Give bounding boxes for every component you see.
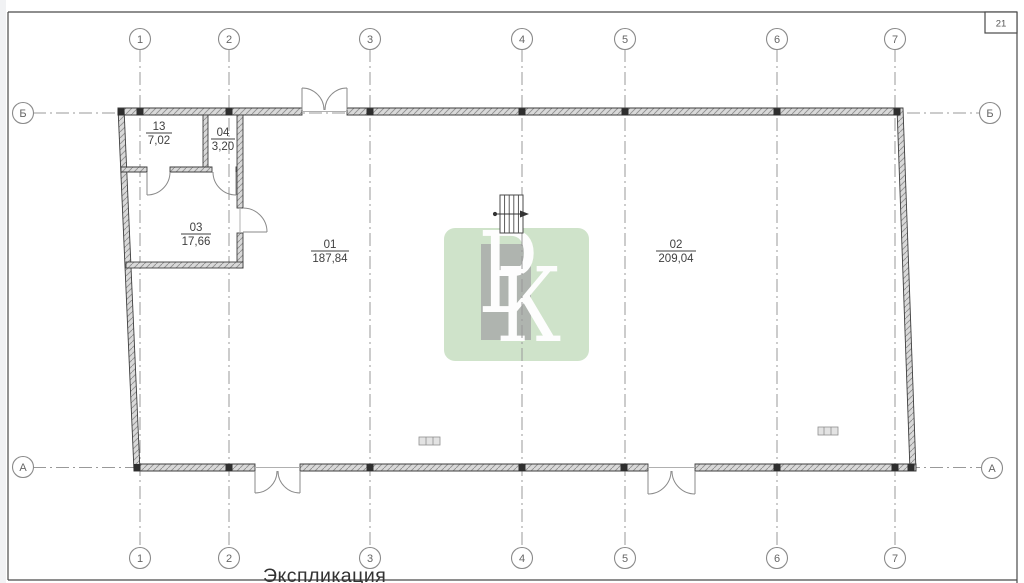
svg-text:01: 01 — [324, 239, 337, 251]
grid-bubble-col-3: 3 — [360, 29, 381, 50]
wall-room13-bottom — [121, 167, 147, 172]
walls — [118, 108, 916, 471]
room-label-04: 04 3,20 — [211, 127, 235, 153]
grid-bubbles-bottom: 1 2 3 4 5 6 7 — [130, 548, 906, 569]
room-label-13: 13 7,02 — [146, 121, 172, 147]
floor-plan-drawing: 21 — [0, 0, 1024, 583]
grid-bubble-col-7: 7 — [885, 29, 906, 50]
sheet-title: Экспликация — [263, 565, 386, 583]
door-room03 — [243, 208, 267, 232]
room-label-02: 02 209,04 — [656, 239, 696, 265]
svg-text:7: 7 — [892, 34, 898, 46]
double-door-bottom-left — [255, 471, 300, 493]
equipment-box — [818, 427, 838, 435]
grid-bubble-col-4: 4 — [512, 29, 533, 50]
grid-bubble-col-2: 2 — [219, 29, 240, 50]
svg-text:Б: Б — [19, 108, 26, 120]
svg-text:5: 5 — [622, 553, 628, 565]
double-door-top — [302, 88, 347, 110]
grid-bubble-col-6: 6 — [767, 29, 788, 50]
svg-text:5: 5 — [622, 34, 628, 46]
floor-plan-canvas: Р К 21 — [0, 0, 1024, 583]
grid-bubble-col-2: 2 — [219, 548, 240, 569]
wall-bottom-2 — [300, 464, 648, 471]
wall-left — [118, 108, 140, 471]
drawing-frame — [8, 12, 1017, 583]
wall-bottom-3 — [695, 464, 916, 471]
grid-bubble-row-b-right: Б — [980, 103, 1001, 124]
wall-room04-bottom — [170, 167, 212, 172]
wall-room03-right-upper — [237, 115, 243, 208]
svg-text:3: 3 — [367, 34, 373, 46]
equipment-boxes — [419, 427, 838, 445]
door-room04 — [213, 172, 236, 195]
svg-text:3: 3 — [367, 553, 373, 565]
grid-bubble-col-1: 1 — [130, 548, 151, 569]
grid-bubbles-top: 1 2 3 4 5 6 7 — [130, 29, 906, 50]
svg-text:6: 6 — [774, 34, 780, 46]
sheet-number-box: 21 — [985, 12, 1017, 33]
grid-bubble-col-7: 7 — [885, 548, 906, 569]
equipment-box — [419, 437, 440, 445]
door-sills — [240, 112, 695, 468]
grid-bubble-col-5: 5 — [615, 29, 636, 50]
grid-bubble-row-a-right: А — [982, 458, 1003, 479]
door-room13 — [147, 172, 170, 195]
svg-text:1: 1 — [137, 553, 143, 565]
wall-room13-04 — [203, 115, 208, 167]
room-label-01: 01 187,84 — [311, 239, 349, 265]
wall-right — [897, 108, 916, 471]
svg-text:7: 7 — [892, 553, 898, 565]
grid-bubble-col-1: 1 — [130, 29, 151, 50]
sheet-number: 21 — [996, 19, 1007, 30]
stair-icon — [493, 195, 529, 233]
grid-bubble-col-6: 6 — [767, 548, 788, 569]
svg-text:187,84: 187,84 — [312, 253, 348, 265]
grid-bubble-row-a-left: А — [13, 457, 34, 478]
svg-text:209,04: 209,04 — [658, 253, 694, 265]
svg-text:04: 04 — [217, 127, 230, 139]
svg-text:7,02: 7,02 — [148, 135, 170, 147]
double-door-bottom-right — [648, 471, 695, 494]
svg-text:02: 02 — [670, 239, 683, 251]
svg-text:13: 13 — [153, 121, 166, 133]
grid-bubble-col-5: 5 — [615, 548, 636, 569]
room-label-03: 03 17,66 — [181, 222, 211, 248]
svg-text:2: 2 — [226, 553, 232, 565]
svg-text:А: А — [988, 463, 996, 475]
svg-text:1: 1 — [137, 34, 143, 46]
svg-text:17,66: 17,66 — [182, 236, 211, 248]
svg-text:4: 4 — [519, 34, 525, 46]
wall-room03-bottom — [126, 262, 243, 268]
svg-text:А: А — [19, 462, 27, 474]
svg-text:3,20: 3,20 — [212, 141, 234, 153]
wall-top-left — [118, 108, 302, 115]
svg-text:Б: Б — [986, 108, 993, 120]
svg-text:2: 2 — [226, 34, 232, 46]
grid-bubble-row-b-left: Б — [13, 103, 34, 124]
svg-text:4: 4 — [519, 553, 525, 565]
grid-bubble-col-4: 4 — [512, 548, 533, 569]
grid-bubbles-rows: Б А Б А — [13, 103, 1003, 479]
grid-axis-lines — [33, 49, 981, 547]
svg-text:6: 6 — [774, 553, 780, 565]
svg-text:03: 03 — [190, 222, 203, 234]
wall-bottom-1 — [134, 464, 255, 471]
